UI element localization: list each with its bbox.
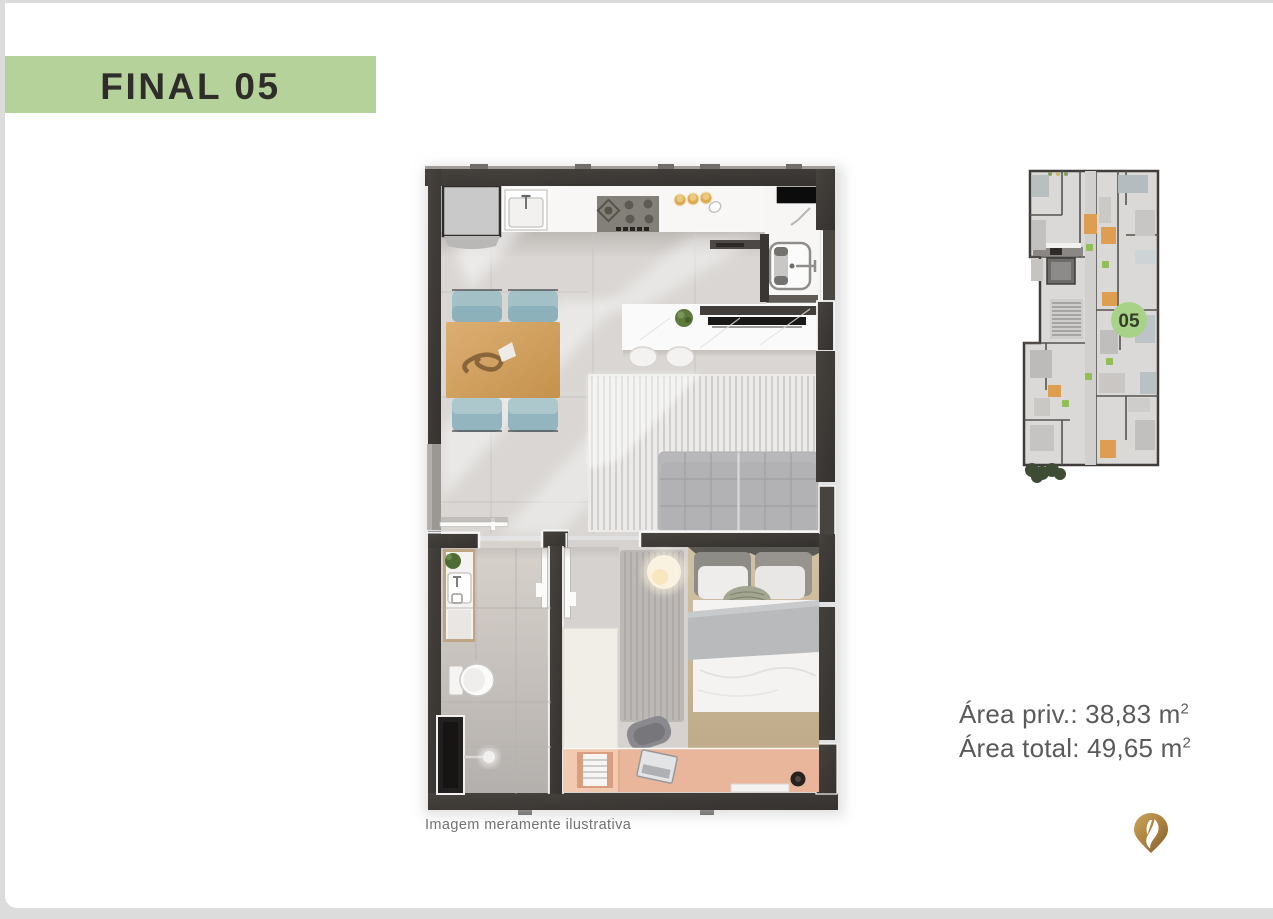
svg-text:05: 05	[1118, 311, 1140, 332]
